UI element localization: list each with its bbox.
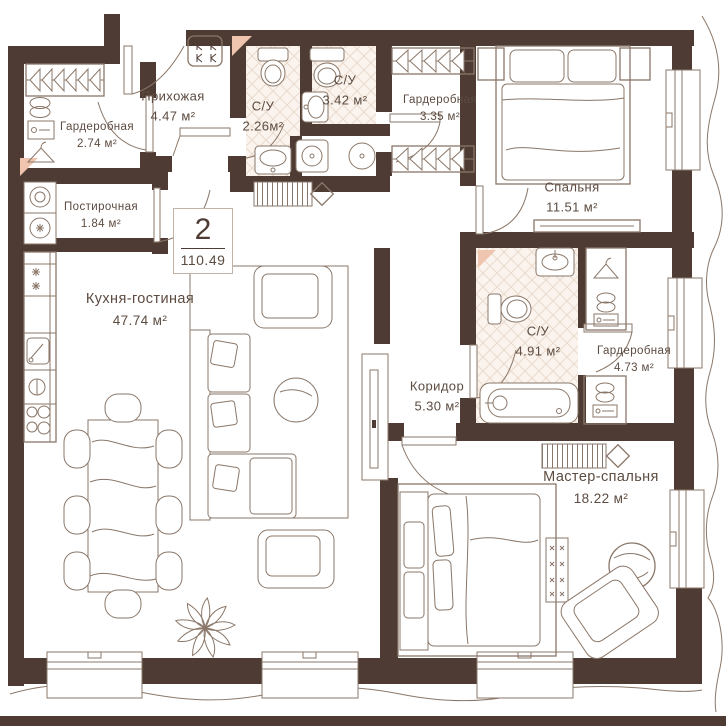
tv-unit [362, 354, 388, 480]
kitchen-opening-door [173, 128, 230, 156]
armchair [258, 530, 334, 588]
room-label-master-bedroom: Мастер-спальня 18.22 м² [543, 467, 659, 509]
room-label-bedroom: Спальня 11.51 м² [544, 178, 599, 217]
room-label-bath-1: С/У 2.26м² [243, 97, 284, 136]
washbasin-icon [255, 146, 291, 174]
closet-shelving [584, 376, 626, 424]
washing-machine-icon [24, 182, 56, 213]
chair [105, 590, 141, 618]
drawer-icon [28, 121, 54, 139]
floor-plan: Прихожая 4.47 м² Гардеробная 2.74 м² Пос… [0, 0, 726, 726]
window-bottom-left [47, 652, 142, 698]
room-label-corridor: Коридор 5.30 м² [410, 377, 464, 416]
room-label-bath-2: С/У 3.42 м² [323, 71, 368, 110]
bed [496, 46, 630, 184]
chair [64, 430, 90, 468]
pillow [210, 400, 237, 427]
round-fixture-icon [349, 143, 375, 169]
tv-console [534, 220, 640, 232]
oven-icon [29, 379, 45, 395]
stove-icon [27, 406, 50, 434]
chair [64, 496, 90, 534]
total-area: 110.49 [181, 252, 226, 268]
window-right-master [670, 490, 704, 588]
kitchen-counter [24, 252, 56, 442]
bed [398, 484, 556, 656]
room-label-hallway: Прихожая 4.47 м² [141, 87, 204, 126]
room-label-kitchen-living: Кухня-гостиная 47.74 м² [86, 289, 194, 331]
room-label-wardrobe-3: Гардеробная 4.73 м² [597, 343, 671, 378]
closet-rail-icon [392, 146, 474, 172]
window-right-wardrobe [668, 278, 702, 368]
nightstand [620, 48, 650, 80]
sofa [190, 330, 296, 520]
toilet-icon [258, 48, 288, 86]
room-label-wardrobe-1: Гардеробная 2.74 м² [60, 119, 134, 154]
nightstand [478, 48, 504, 80]
wardrobe3-furniture [584, 248, 626, 424]
doormat-icon [542, 444, 629, 468]
dryer-icon [24, 213, 56, 244]
room-count: 2 [195, 215, 212, 245]
room-label-bath-3: С/У 4.91 м² [516, 322, 561, 361]
chair [64, 552, 90, 590]
window-bottom-center [262, 652, 358, 698]
master-door [402, 437, 456, 496]
site-edge [0, 716, 726, 726]
shelves-icon [30, 98, 50, 118]
window-bottom-right [477, 652, 573, 698]
closet-rail-icon [392, 48, 474, 74]
chair [105, 394, 141, 422]
armchair [557, 561, 664, 663]
apartment-badge: 2 110.49 [173, 208, 233, 274]
toilet-icon [488, 294, 531, 324]
chair [156, 552, 182, 590]
coffee-table [274, 378, 318, 422]
washer-column-icon [296, 140, 328, 172]
pillow [210, 340, 238, 368]
living-area [175, 266, 348, 658]
armchair [254, 266, 332, 328]
dining-table [64, 394, 182, 618]
closet-rail-icon [26, 64, 104, 96]
window-right-bedroom [666, 70, 700, 170]
chair [156, 496, 182, 534]
room-label-wardrobe-2: Гардеробная 3.35 м² [403, 92, 477, 127]
laundry-furniture [24, 182, 56, 244]
washbasin-icon [536, 248, 574, 276]
kitchen-sink-icon [27, 338, 49, 364]
bedside-rug-icon [546, 538, 568, 602]
fridge-icon [32, 268, 40, 290]
pillow [212, 464, 239, 491]
chair [156, 430, 182, 468]
closet-shelving [586, 248, 626, 330]
bathtub-icon [480, 383, 578, 423]
bedroom-door [476, 186, 528, 234]
badge-divider [181, 248, 225, 249]
room-label-laundry: Постирочная 1.84 м² [64, 199, 138, 234]
plant-icon [175, 597, 235, 658]
